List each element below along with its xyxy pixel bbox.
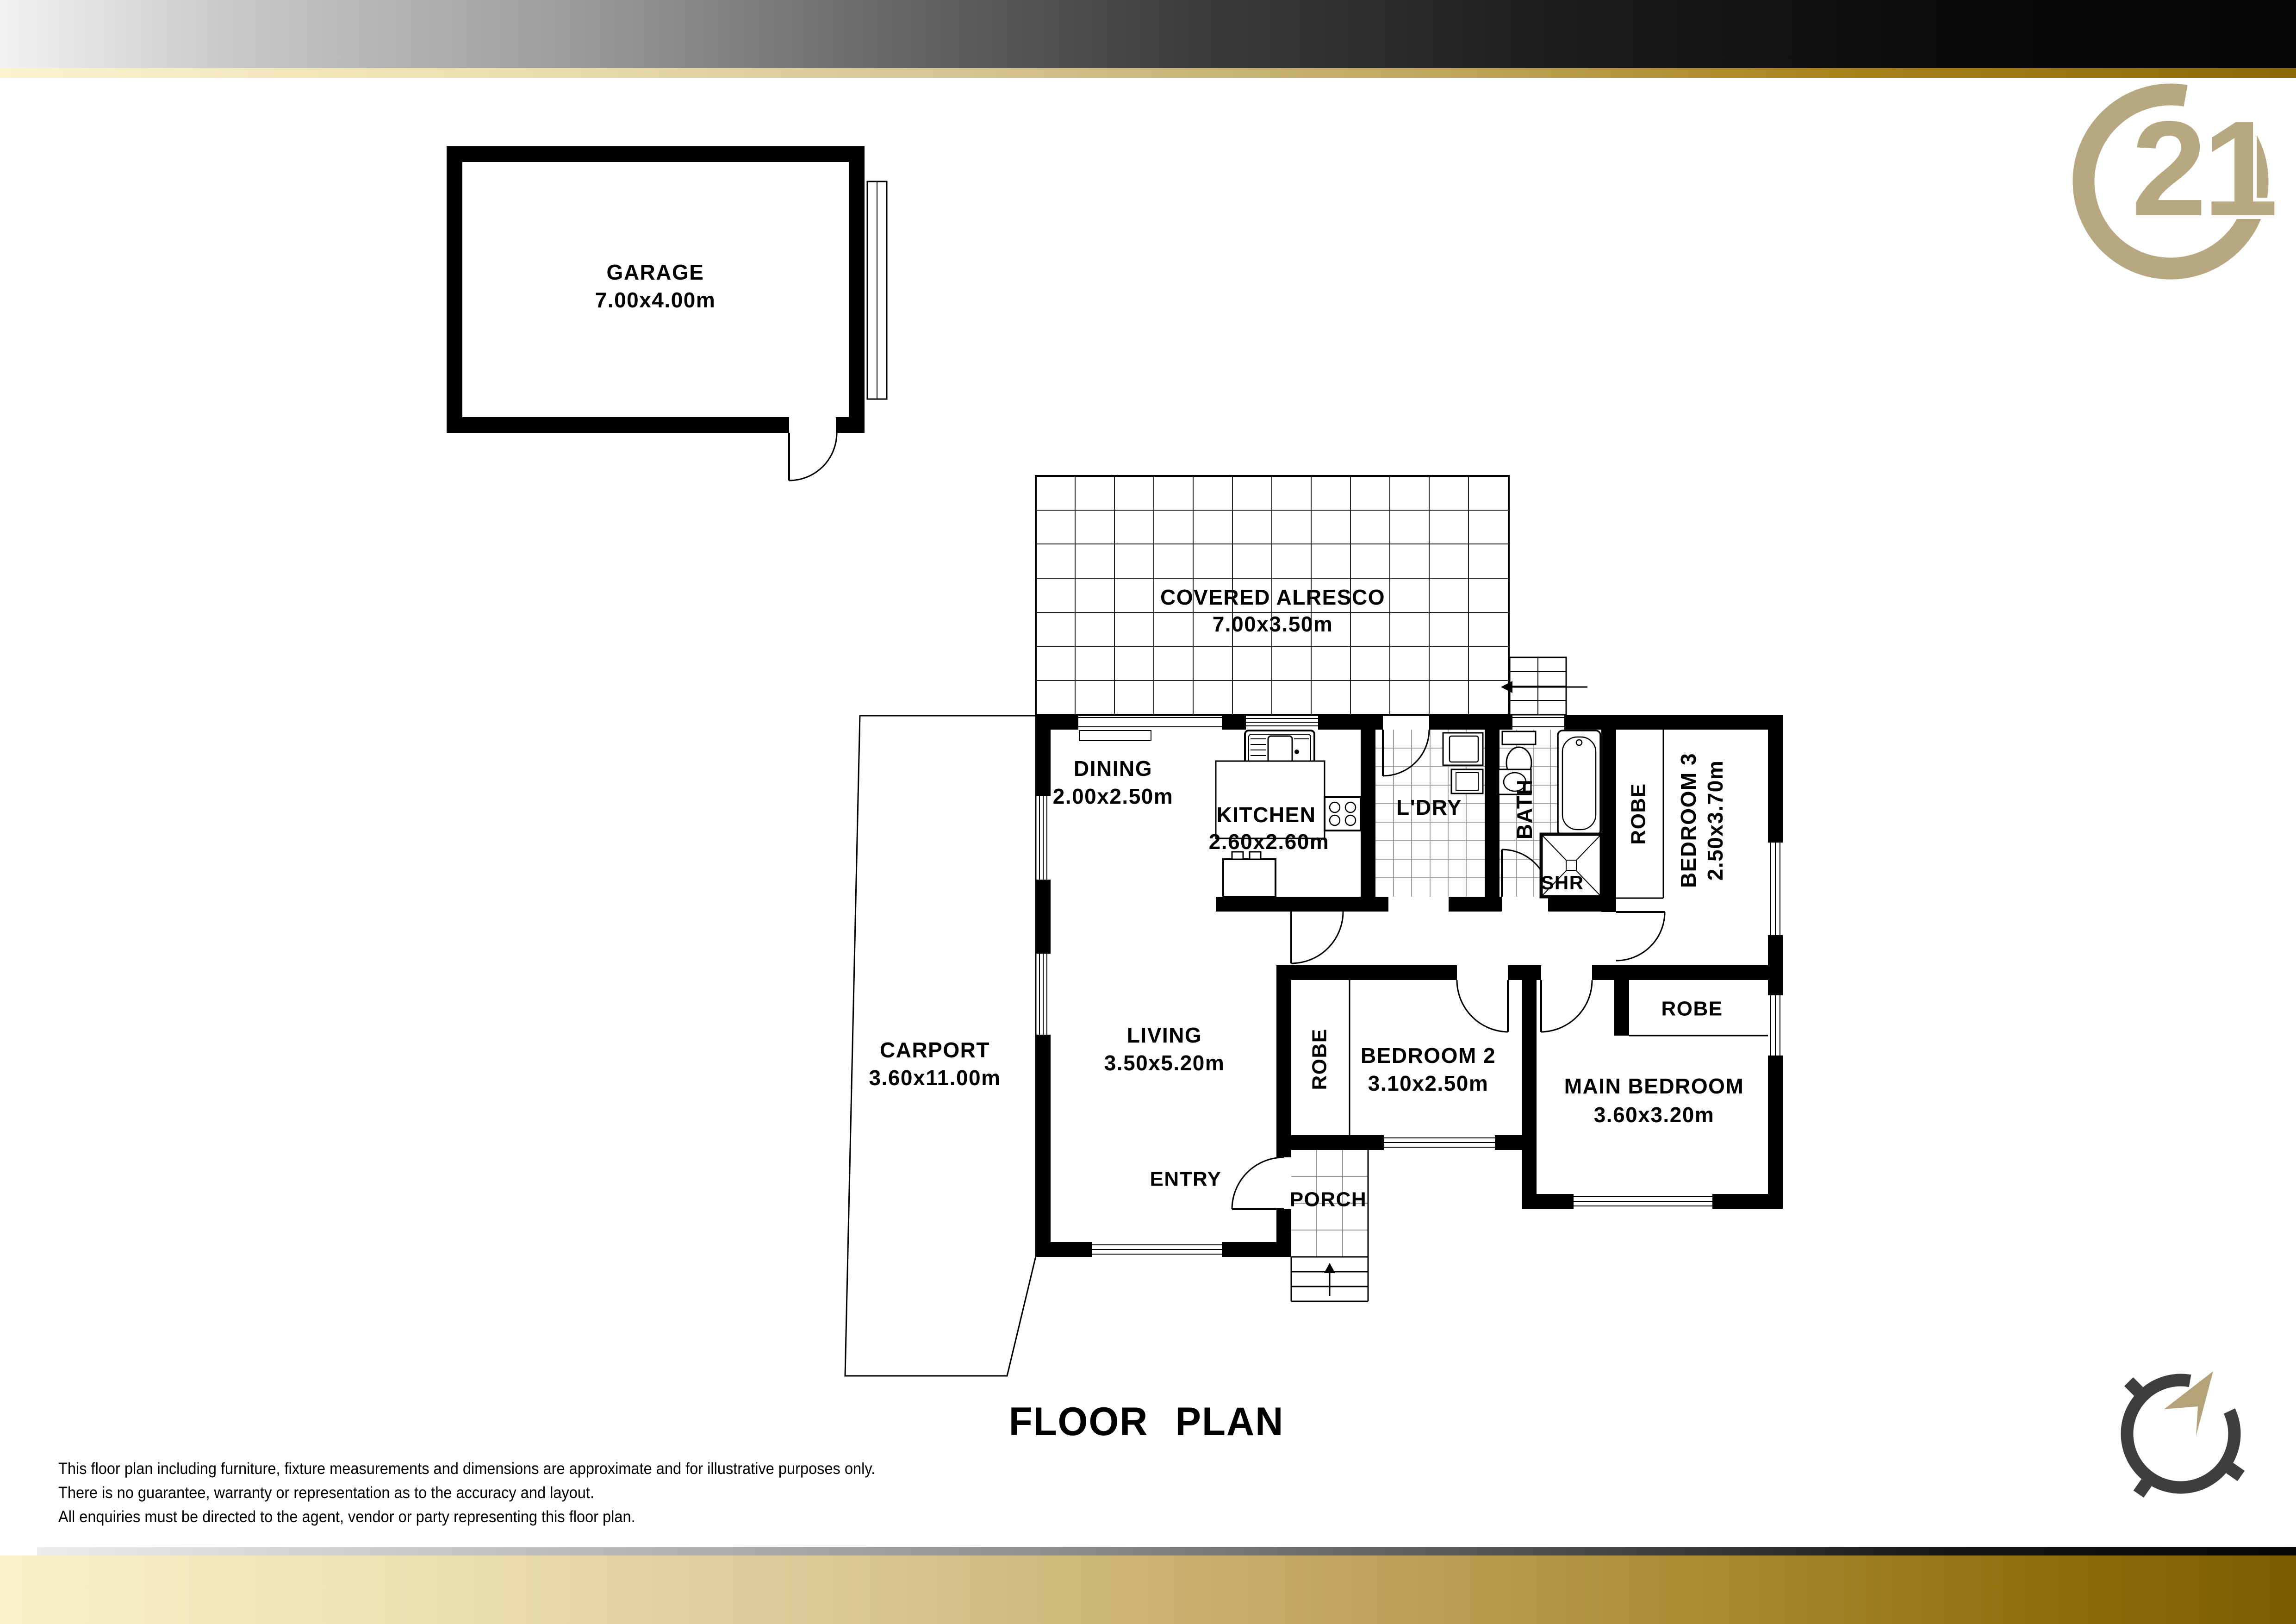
shower-label: SHR bbox=[1541, 872, 1584, 893]
page-title: FLOOR PLAN bbox=[1009, 1399, 1284, 1445]
entry-door-swing bbox=[1232, 1157, 1284, 1209]
entry-label: ENTRY bbox=[1150, 1168, 1222, 1191]
laundry-door-swing bbox=[1383, 730, 1429, 776]
island-bench bbox=[1223, 859, 1276, 897]
stairs bbox=[1501, 657, 1587, 715]
bed3-label: BEDROOM 3 bbox=[1676, 753, 1700, 888]
stove-icon bbox=[1325, 797, 1361, 831]
bed3-door-swing bbox=[1616, 912, 1665, 961]
carport-label: CARPORT bbox=[880, 1038, 990, 1062]
laundry-label: L'DRY bbox=[1396, 795, 1462, 819]
mainbed-dims: 3.60x3.20m bbox=[1594, 1103, 1715, 1127]
bed2-door-swing bbox=[1457, 980, 1508, 1032]
mainbed-door-swing bbox=[1541, 980, 1592, 1032]
dining-label: DINING bbox=[1074, 756, 1152, 781]
disclaimer-line-3: All enquiries must be directed to the ag… bbox=[58, 1505, 875, 1529]
garage-label: GARAGE bbox=[607, 260, 704, 284]
floor-plan-page: 21 bbox=[0, 0, 2296, 1624]
bed3-dims: 2.50x3.70m bbox=[1703, 760, 1727, 881]
carport-dims: 3.60x11.00m bbox=[869, 1066, 1001, 1090]
disclaimer-line-1: This floor plan including furniture, fix… bbox=[58, 1457, 875, 1481]
garage-dims: 7.00x4.00m bbox=[595, 288, 716, 312]
floor-plan-drawing: GARAGE7.00x4.00mCOVERED ALRESCO7.00x3.50… bbox=[0, 0, 2296, 1624]
robe-bed3-label: ROBE bbox=[1627, 783, 1650, 844]
robe-bed2-label: ROBE bbox=[1308, 1028, 1331, 1090]
dining-dims: 2.00x2.50m bbox=[1053, 784, 1174, 808]
alfresco-dims: 7.00x3.50m bbox=[1213, 612, 1333, 636]
laundry-fixtures bbox=[1443, 733, 1483, 793]
disclaimer-line-2: There is no guarantee, warranty or repre… bbox=[58, 1481, 875, 1505]
bed2-label: BEDROOM 2 bbox=[1361, 1043, 1496, 1068]
kitchen-label: KITCHEN bbox=[1217, 803, 1316, 827]
kitchen-dims: 2.60x2.60m bbox=[1209, 830, 1330, 854]
living-label: LIVING bbox=[1127, 1023, 1202, 1047]
bath-label: BATH bbox=[1512, 779, 1537, 839]
porch-label: PORCH bbox=[1290, 1188, 1367, 1211]
garage-door-swing bbox=[789, 433, 837, 481]
bathtub-icon bbox=[1558, 731, 1600, 835]
disclaimer-text: This floor plan including furniture, fix… bbox=[58, 1457, 875, 1529]
living-dims: 3.50x5.20m bbox=[1104, 1051, 1225, 1075]
bed2-dims: 3.10x2.50m bbox=[1368, 1071, 1489, 1095]
mainbed-label: MAIN BEDROOM bbox=[1564, 1074, 1744, 1098]
porch-area bbox=[1291, 1150, 1368, 1301]
garage-room bbox=[447, 146, 887, 481]
hall-door-swing bbox=[1291, 912, 1343, 963]
toilet-tank-icon bbox=[1502, 731, 1536, 744]
robe-main-label: ROBE bbox=[1661, 998, 1723, 1020]
alfresco-label: COVERED ALRESCO bbox=[1160, 585, 1385, 609]
